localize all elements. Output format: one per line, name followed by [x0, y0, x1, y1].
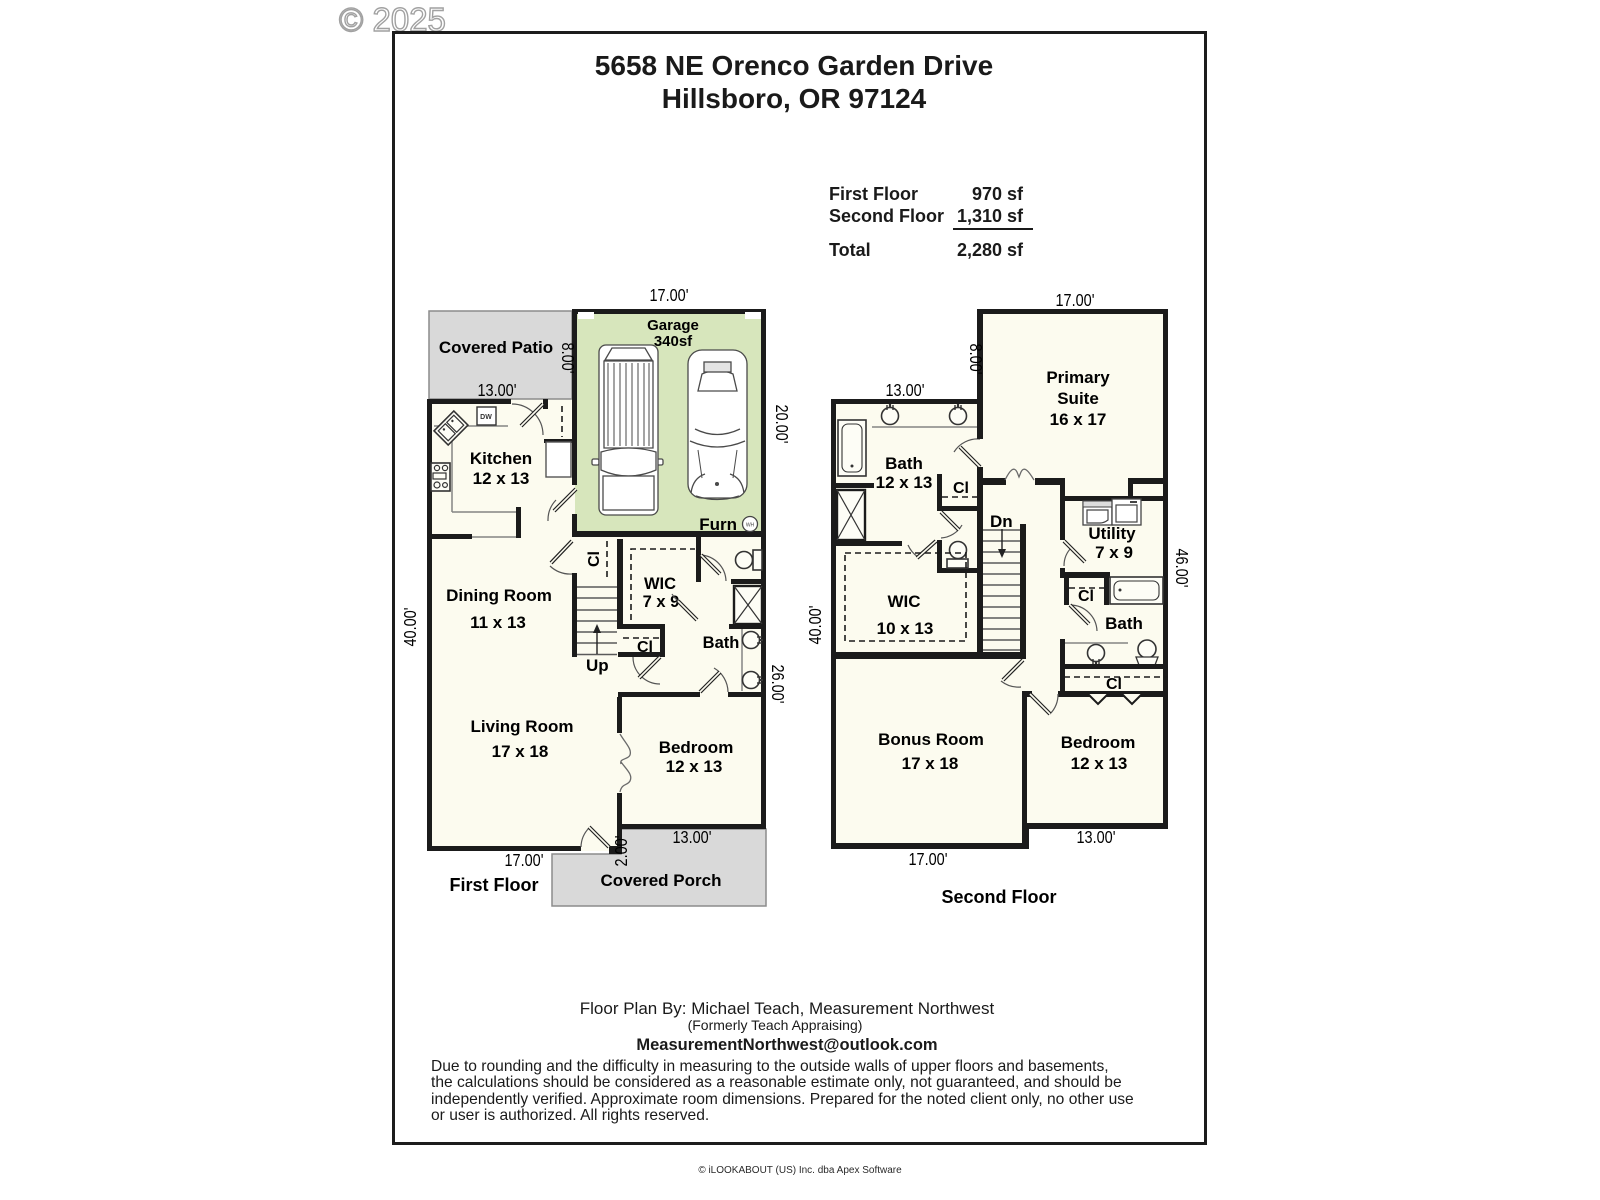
svg-text:Cl: Cl [1106, 676, 1122, 693]
svg-text:WH: WH [746, 523, 755, 529]
svg-text:26.00': 26.00' [768, 665, 788, 704]
svg-text:Utility: Utility [1088, 524, 1136, 543]
svg-text:Bonus Room: Bonus Room [878, 730, 984, 749]
svg-text:2.00': 2.00' [611, 836, 631, 867]
svg-text:46.00': 46.00' [1172, 549, 1190, 588]
svg-text:12 x 13: 12 x 13 [666, 757, 723, 776]
svg-text:Bedroom: Bedroom [659, 738, 734, 757]
svg-text:8.00': 8.00' [558, 343, 578, 374]
svg-text:Cl: Cl [586, 551, 603, 567]
svg-text:Kitchen: Kitchen [470, 449, 532, 468]
svg-text:17.00': 17.00' [909, 849, 948, 869]
svg-text:12 x 13: 12 x 13 [473, 469, 530, 488]
svg-text:17 x 18: 17 x 18 [492, 742, 549, 761]
svg-text:Covered Porch: Covered Porch [601, 871, 722, 890]
svg-text:10 x 13: 10 x 13 [877, 619, 934, 638]
svg-text:Bath: Bath [1105, 614, 1143, 633]
svg-text:13.00': 13.00' [1077, 827, 1116, 847]
svg-text:13.00': 13.00' [886, 380, 925, 400]
svg-text:17.00': 17.00' [505, 850, 544, 870]
svg-text:12 x 13: 12 x 13 [876, 473, 933, 492]
svg-text:13.00': 13.00' [673, 827, 712, 847]
svg-text:8.00': 8.00' [966, 344, 986, 375]
svg-text:17 x 18: 17 x 18 [902, 754, 959, 773]
svg-text:Covered Patio: Covered Patio [439, 338, 553, 357]
svg-text:Cl: Cl [1078, 588, 1094, 605]
svg-text:Cl: Cl [637, 639, 653, 656]
svg-text:Up: Up [586, 656, 609, 675]
svg-text:Dn: Dn [990, 512, 1013, 531]
svg-text:7 x 9: 7 x 9 [1095, 543, 1133, 562]
svg-text:20.00': 20.00' [772, 405, 792, 444]
svg-text:17.00': 17.00' [650, 285, 689, 305]
svg-text:40.00': 40.00' [805, 606, 825, 645]
svg-text:WIC: WIC [887, 592, 920, 611]
svg-text:Bath: Bath [703, 634, 740, 652]
svg-text:40.00': 40.00' [400, 608, 420, 647]
svg-text:Garage: Garage [647, 317, 699, 334]
svg-text:Living Room: Living Room [471, 717, 574, 736]
svg-text:Suite: Suite [1057, 389, 1099, 408]
svg-text:12 x 13: 12 x 13 [1071, 754, 1128, 773]
svg-text:Dining Room: Dining Room [446, 586, 552, 605]
svg-text:340sf: 340sf [654, 333, 693, 350]
svg-text:13.00': 13.00' [478, 380, 517, 400]
svg-text:Furn: Furn [699, 515, 737, 534]
svg-text:DW: DW [480, 414, 492, 421]
svg-text:Cl: Cl [953, 480, 969, 497]
svg-text:Primary: Primary [1046, 368, 1110, 387]
svg-text:WIC: WIC [644, 575, 676, 593]
svg-text:7 x 9: 7 x 9 [643, 593, 680, 611]
svg-text:Bath: Bath [885, 454, 923, 473]
svg-text:Second Floor: Second Floor [941, 887, 1056, 907]
svg-text:Bedroom: Bedroom [1061, 733, 1136, 752]
svg-text:First Floor: First Floor [450, 875, 539, 895]
svg-text:16 x 17: 16 x 17 [1050, 410, 1107, 429]
svg-text:17.00': 17.00' [1056, 290, 1095, 310]
svg-text:11 x 13: 11 x 13 [470, 613, 526, 632]
